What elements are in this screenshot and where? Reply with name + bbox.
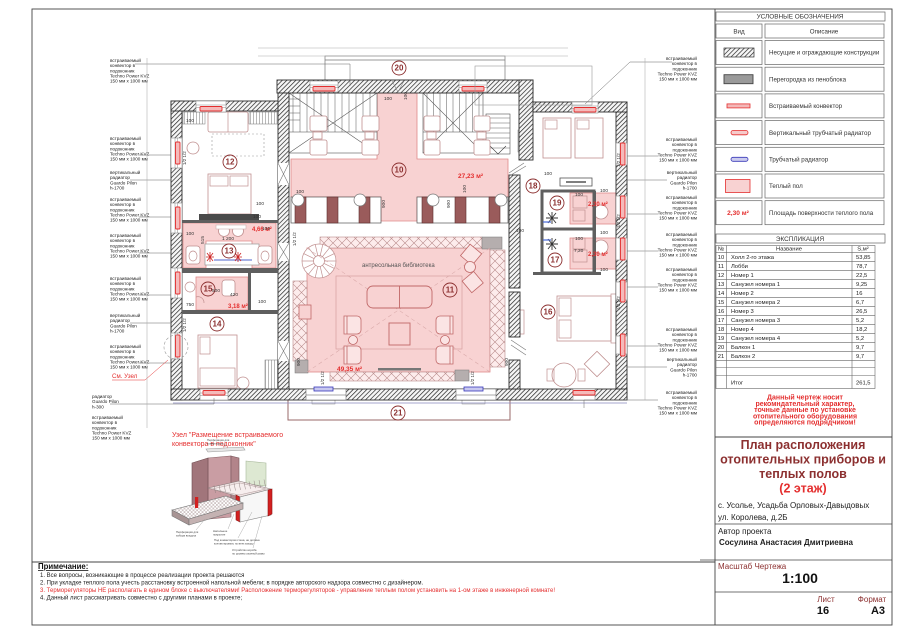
svg-text:встраиваемый: встраиваемый (666, 136, 697, 142)
svg-text:Перегородка из пеноблока: Перегородка из пеноблока (769, 76, 847, 83)
svg-text:Встраиваемый конвектор: Встраиваемый конвектор (769, 103, 843, 110)
svg-text:261,5: 261,5 (856, 380, 871, 386)
svg-text:Площадь поверхности теплого по: Площадь поверхности теплого пола (769, 210, 874, 217)
svg-text:Лобби: Лобби (731, 264, 748, 270)
svg-text:ЭКСПЛИКАЦИЯ: ЭКСПЛИКАЦИЯ (776, 236, 825, 243)
svg-text:150 мм х 1000 мм: 150 мм х 1000 мм (659, 348, 697, 353)
svg-text:1/2 1/2: 1/2 1/2 (182, 318, 187, 332)
svg-text:900: 900 (504, 358, 510, 366)
svg-text:Теплый пол: Теплый пол (769, 183, 803, 190)
svg-text:1. Все вопросы, возникающие в: 1. Все вопросы, возникающие в процессе р… (40, 573, 244, 579)
svg-text:9,7: 9,7 (856, 354, 864, 360)
svg-text:100: 100 (516, 228, 524, 234)
svg-text:встраиваемый: встраиваемый (110, 275, 141, 281)
svg-text:16: 16 (718, 309, 724, 315)
svg-text:11: 11 (446, 286, 455, 295)
svg-text:встраиваемый: встраиваемый (110, 135, 141, 141)
svg-text:100: 100 (600, 230, 608, 236)
svg-text:150 мм х 1000 мм: 150 мм х 1000 мм (110, 218, 148, 223)
svg-text:1/2 1/2: 1/2 1/2 (616, 153, 621, 167)
svg-text:2,30 м²: 2,30 м² (588, 251, 608, 258)
svg-text:100: 100 (462, 185, 468, 193)
svg-text:h-1700: h-1700 (110, 185, 125, 190)
svg-text:встраиваемый: встраиваемый (666, 389, 697, 395)
svg-text:49,35 м²: 49,35 м² (337, 366, 363, 373)
svg-text:1:100: 1:100 (782, 570, 818, 586)
svg-text:Санузел номера 3: Санузел номера 3 (731, 318, 780, 324)
svg-text:100: 100 (258, 299, 266, 305)
svg-text:встраиваемый: встраиваемый (666, 266, 697, 272)
svg-text:22,5: 22,5 (856, 273, 867, 279)
svg-text:900: 900 (296, 358, 302, 366)
svg-text:3,18 м²: 3,18 м² (228, 303, 248, 310)
svg-text:Трубчатый радиатор: Трубчатый радиатор (769, 157, 829, 164)
svg-text:по уровню оконной рамы: по уровню оконной рамы (232, 552, 265, 556)
svg-text:100: 100 (384, 96, 392, 102)
svg-text:3. Терморегуляторы НЕ располаг: 3. Терморегуляторы НЕ располагать в един… (40, 587, 555, 594)
svg-text:Автор проекта: Автор проекта (718, 527, 772, 536)
svg-text:20: 20 (718, 345, 724, 351)
svg-text:Описание: Описание (810, 29, 839, 36)
svg-text:21: 21 (718, 354, 724, 360)
svg-text:вертикальный: вертикальный (667, 356, 698, 362)
svg-text:900: 900 (446, 200, 452, 208)
svg-text:5,2: 5,2 (856, 318, 864, 324)
svg-text:16: 16 (817, 605, 829, 617)
svg-text:Примечание:: Примечание: (38, 562, 88, 571)
svg-text:18,2: 18,2 (856, 327, 867, 333)
svg-text:150 мм х 1000 мм: 150 мм х 1000 мм (659, 158, 697, 163)
svg-text:вертикальный: вертикальный (667, 169, 698, 175)
svg-text:Номер 1: Номер 1 (731, 273, 754, 279)
svg-text:Несущие и ограждающие конструк: Несущие и ограждающие конструкции (769, 50, 880, 57)
svg-text:S,м²: S,м² (857, 246, 868, 252)
svg-text:17: 17 (718, 318, 724, 324)
svg-text:теплых полов: теплых полов (759, 467, 847, 481)
svg-text:Итог: Итог (731, 380, 743, 386)
svg-text:Масштаб Чертежа: Масштаб Чертежа (718, 562, 787, 571)
svg-text:100: 100 (186, 231, 194, 237)
svg-text:1/2 1/2: 1/2 1/2 (320, 371, 325, 385)
svg-text:h-300: h-300 (92, 404, 104, 409)
svg-text:19: 19 (718, 336, 724, 342)
svg-text:1/2 1/2: 1/2 1/2 (292, 232, 297, 246)
svg-text:h-1700: h-1700 (683, 185, 698, 190)
svg-text:(2 этаж): (2 этаж) (779, 482, 826, 496)
svg-text:ул. Королева, д.2Б: ул. Королева, д.2Б (718, 513, 788, 522)
svg-text:100: 100 (186, 118, 194, 124)
svg-text:100: 100 (600, 267, 608, 273)
svg-text:100: 100 (575, 236, 583, 242)
svg-text:вертикальный: вертикальный (110, 169, 141, 175)
svg-text:100: 100 (544, 171, 552, 177)
svg-text:21: 21 (394, 409, 403, 418)
svg-text:встраиваемый: встраиваемый (110, 57, 141, 63)
svg-text:контактировать по вент.зазору: контактировать по вент.зазору (214, 542, 254, 546)
svg-text:14: 14 (718, 291, 725, 297)
svg-text:13: 13 (718, 282, 724, 288)
svg-text:420: 420 (230, 292, 238, 298)
svg-text:2,30 м²: 2,30 м² (588, 201, 608, 208)
svg-text:вертикальный: вертикальный (110, 312, 141, 318)
svg-text:5,2: 5,2 (856, 336, 864, 342)
svg-text:План расположения: План расположения (741, 438, 866, 452)
svg-text:конвекторов: конвекторов (207, 442, 224, 446)
svg-text:h-1700: h-1700 (110, 328, 125, 333)
svg-text:6,7: 6,7 (856, 300, 864, 306)
svg-text:встраиваемый: встраиваемый (92, 414, 123, 420)
svg-text:150 мм х 1000 мм: 150 мм х 1000 мм (659, 411, 697, 416)
svg-text:11: 11 (718, 264, 724, 270)
svg-text:16: 16 (856, 291, 862, 297)
svg-text:забора воздуха: забора воздуха (176, 534, 196, 538)
svg-text:встраиваемый: встраиваемый (666, 231, 697, 237)
svg-text:Холл 2-го этажа: Холл 2-го этажа (731, 255, 775, 261)
svg-text:150 мм х 1000 мм: 150 мм х 1000 мм (659, 288, 697, 293)
svg-text:16: 16 (544, 308, 553, 317)
svg-text:17: 17 (551, 256, 560, 265)
svg-text:150 мм х 1000 мм: 150 мм х 1000 мм (110, 365, 148, 370)
svg-text:750: 750 (186, 302, 194, 308)
svg-text:100: 100 (253, 214, 261, 220)
svg-text:12: 12 (718, 273, 724, 279)
svg-text:встраиваемый: встраиваемый (666, 55, 697, 61)
svg-text:150 мм х 1000 мм: 150 мм х 1000 мм (110, 297, 148, 302)
svg-text:20: 20 (395, 64, 404, 73)
svg-text:14: 14 (213, 320, 222, 329)
svg-text:Лист: Лист (817, 595, 835, 604)
svg-text:А3: А3 (871, 605, 885, 617)
svg-text:10: 10 (718, 255, 724, 261)
svg-text:100: 100 (296, 189, 304, 195)
svg-text:Вид: Вид (733, 29, 745, 36)
svg-text:Сосулина Анастасия Дмитриевна: Сосулина Анастасия Дмитриевна (719, 538, 853, 547)
svg-text:18: 18 (718, 327, 724, 333)
svg-text:150 мм х 1000 мм: 150 мм х 1000 мм (110, 79, 148, 84)
svg-text:антресольная библиотека: антресольная библиотека (362, 263, 435, 269)
svg-text:27,23 м²: 27,23 м² (458, 173, 484, 180)
svg-text:500: 500 (212, 288, 220, 294)
svg-text:100: 100 (403, 92, 409, 100)
svg-text:900: 900 (381, 200, 387, 208)
svg-text:19: 19 (553, 199, 562, 208)
svg-text:2,30 м²: 2,30 м² (727, 210, 750, 217)
svg-text:Номер 3: Номер 3 (731, 309, 754, 315)
svg-text:1/2 1/2: 1/2 1/2 (616, 214, 621, 228)
svg-text:Балкон 1: Балкон 1 (731, 345, 755, 351)
svg-text:53,85: 53,85 (856, 255, 871, 261)
svg-text:100: 100 (575, 192, 583, 198)
svg-text:Название: Название (776, 246, 802, 252)
svg-text:150 мм х 1000 мм: 150 мм х 1000 мм (110, 254, 148, 259)
svg-text:13: 13 (225, 247, 234, 256)
svg-text:См. Узел: См. Узел (112, 373, 138, 380)
svg-text:1 200: 1 200 (222, 236, 234, 242)
svg-text:78,7: 78,7 (856, 264, 867, 270)
svg-text:100: 100 (256, 201, 264, 207)
svg-text:покрытие: покрытие (213, 533, 226, 537)
svg-text:150 мм х 1000 мм: 150 мм х 1000 мм (110, 157, 148, 162)
svg-text:Номер 4: Номер 4 (731, 327, 754, 333)
svg-text:Санузел номера 2: Санузел номера 2 (731, 300, 780, 306)
svg-text:4. Данный лист рассматривать с: 4. Данный лист рассматривать совместно с… (40, 595, 242, 602)
svg-text:Номер 2: Номер 2 (731, 291, 754, 297)
svg-text:2. При укладке теплого пола уч: 2. При укладке теплого пола учесть расст… (40, 580, 423, 587)
svg-text:15: 15 (718, 300, 724, 306)
svg-text:отопительных приборов и: отопительных приборов и (720, 453, 886, 467)
svg-text:Балкон 2: Балкон 2 (731, 354, 755, 360)
svg-text:100: 100 (262, 226, 270, 232)
svg-text:515: 515 (200, 236, 206, 244)
svg-text:150 мм х 1000 мм: 150 мм х 1000 мм (659, 253, 697, 258)
svg-text:№: № (718, 246, 724, 252)
svg-text:26,5: 26,5 (856, 309, 867, 315)
svg-text:определяются подрядчиком!: определяются подрядчиком! (754, 420, 856, 427)
svg-text:с. Усолье, Усадьба Орловых-Дав: с. Усолье, Усадьба Орловых-Давыдовых (718, 501, 869, 510)
svg-text:10: 10 (395, 166, 404, 175)
svg-text:встраиваемый: встраиваемый (666, 326, 697, 332)
svg-text:1/2 1/2: 1/2 1/2 (182, 151, 187, 165)
svg-text:9,25: 9,25 (856, 282, 867, 288)
svg-text:встраиваемый: встраиваемый (666, 194, 697, 200)
svg-text:Санузел номера 4: Санузел номера 4 (731, 336, 781, 342)
svg-text:150 мм х 1000 мм: 150 мм х 1000 мм (659, 77, 697, 82)
svg-text:100: 100 (600, 188, 608, 194)
svg-text:150 мм x 1000 мм: 150 мм x 1000 мм (92, 436, 130, 441)
svg-text:9,7: 9,7 (856, 345, 864, 351)
svg-text:встраиваемый: встраиваемый (110, 232, 141, 238)
svg-text:Вертикальный трубчатый радиато: Вертикальный трубчатый радиатор (769, 130, 871, 137)
svg-text:150 мм х 1000 мм: 150 мм х 1000 мм (659, 216, 697, 221)
svg-text:Санузел номера 1: Санузел номера 1 (731, 282, 780, 288)
svg-text:7,20: 7,20 (574, 248, 584, 254)
svg-text:12: 12 (226, 158, 235, 167)
svg-text:встраиваемый: встраиваемый (110, 343, 141, 349)
svg-text:встраиваемый: встраиваемый (110, 196, 141, 202)
svg-text:h-1700: h-1700 (683, 372, 698, 377)
svg-text:Формат: Формат (858, 595, 887, 604)
svg-text:1/2 1/2: 1/2 1/2 (616, 296, 621, 310)
svg-text:18: 18 (529, 182, 538, 191)
svg-text:УСЛОВНЫЕ ОБОЗНАЧЕНИЯ: УСЛОВНЫЕ ОБОЗНАЧЕНИЯ (757, 14, 844, 21)
svg-text:1/2 1/2: 1/2 1/2 (470, 371, 475, 385)
